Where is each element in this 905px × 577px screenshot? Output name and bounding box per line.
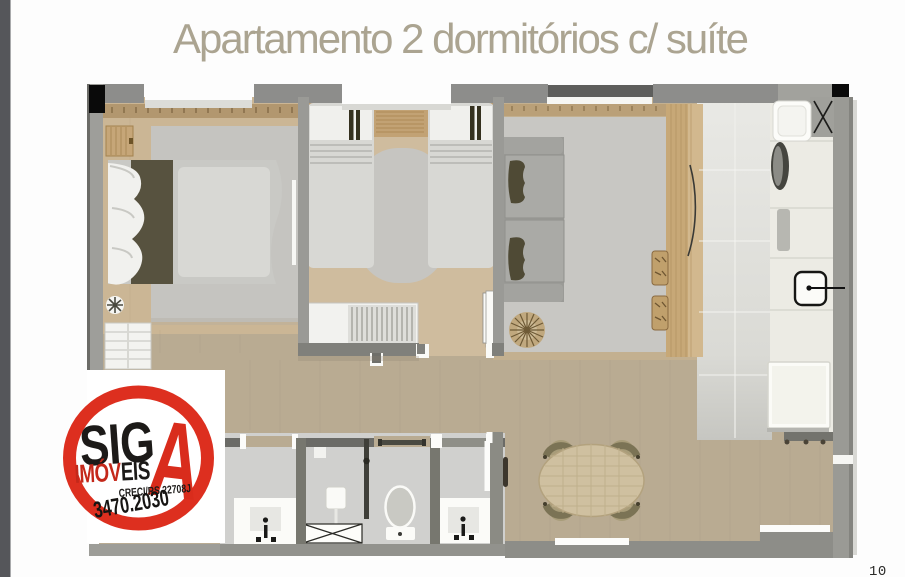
svg-text:Apartamento 2 dormitórios c/ s: Apartamento 2 dormitórios c/ suíte — [173, 15, 748, 62]
svg-text:IMÓVEIS: IMÓVEIS — [74, 455, 151, 489]
svg-text:10: 10 — [869, 564, 887, 577]
